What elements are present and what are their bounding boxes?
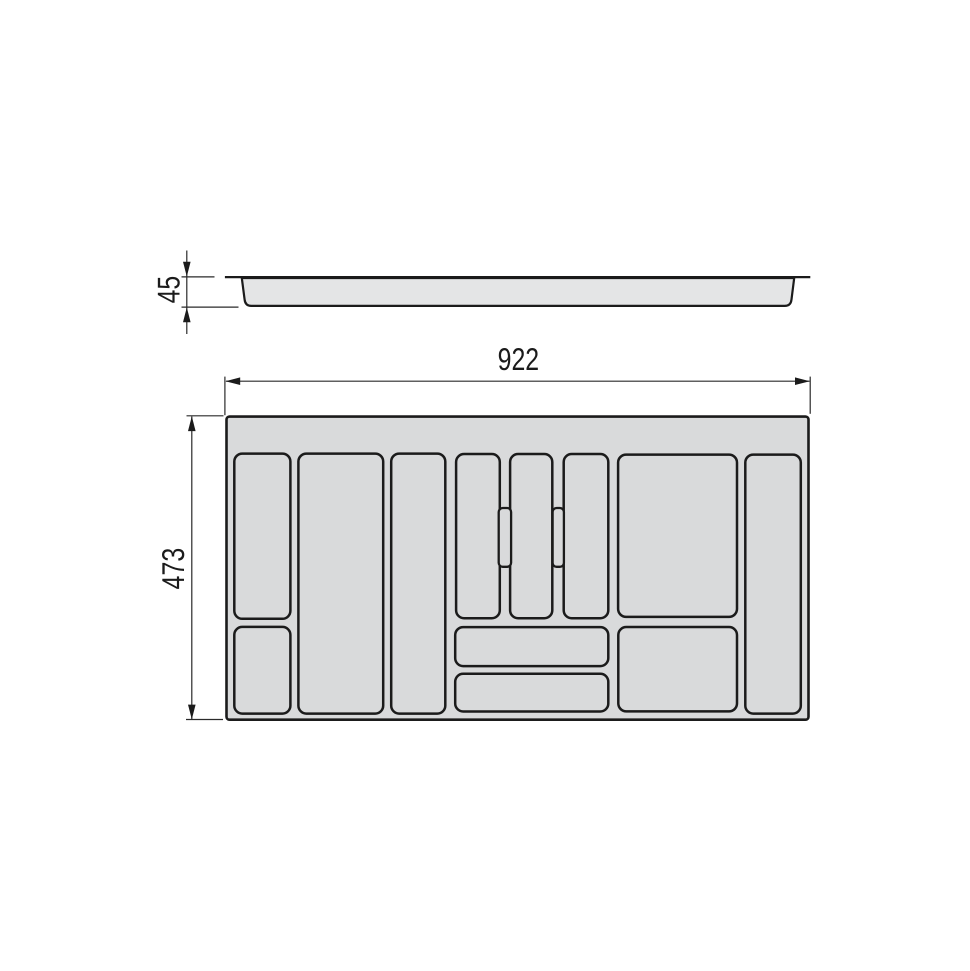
svg-text:45: 45 — [151, 276, 187, 304]
svg-text:473: 473 — [155, 548, 191, 590]
svg-text:922: 922 — [498, 341, 540, 377]
